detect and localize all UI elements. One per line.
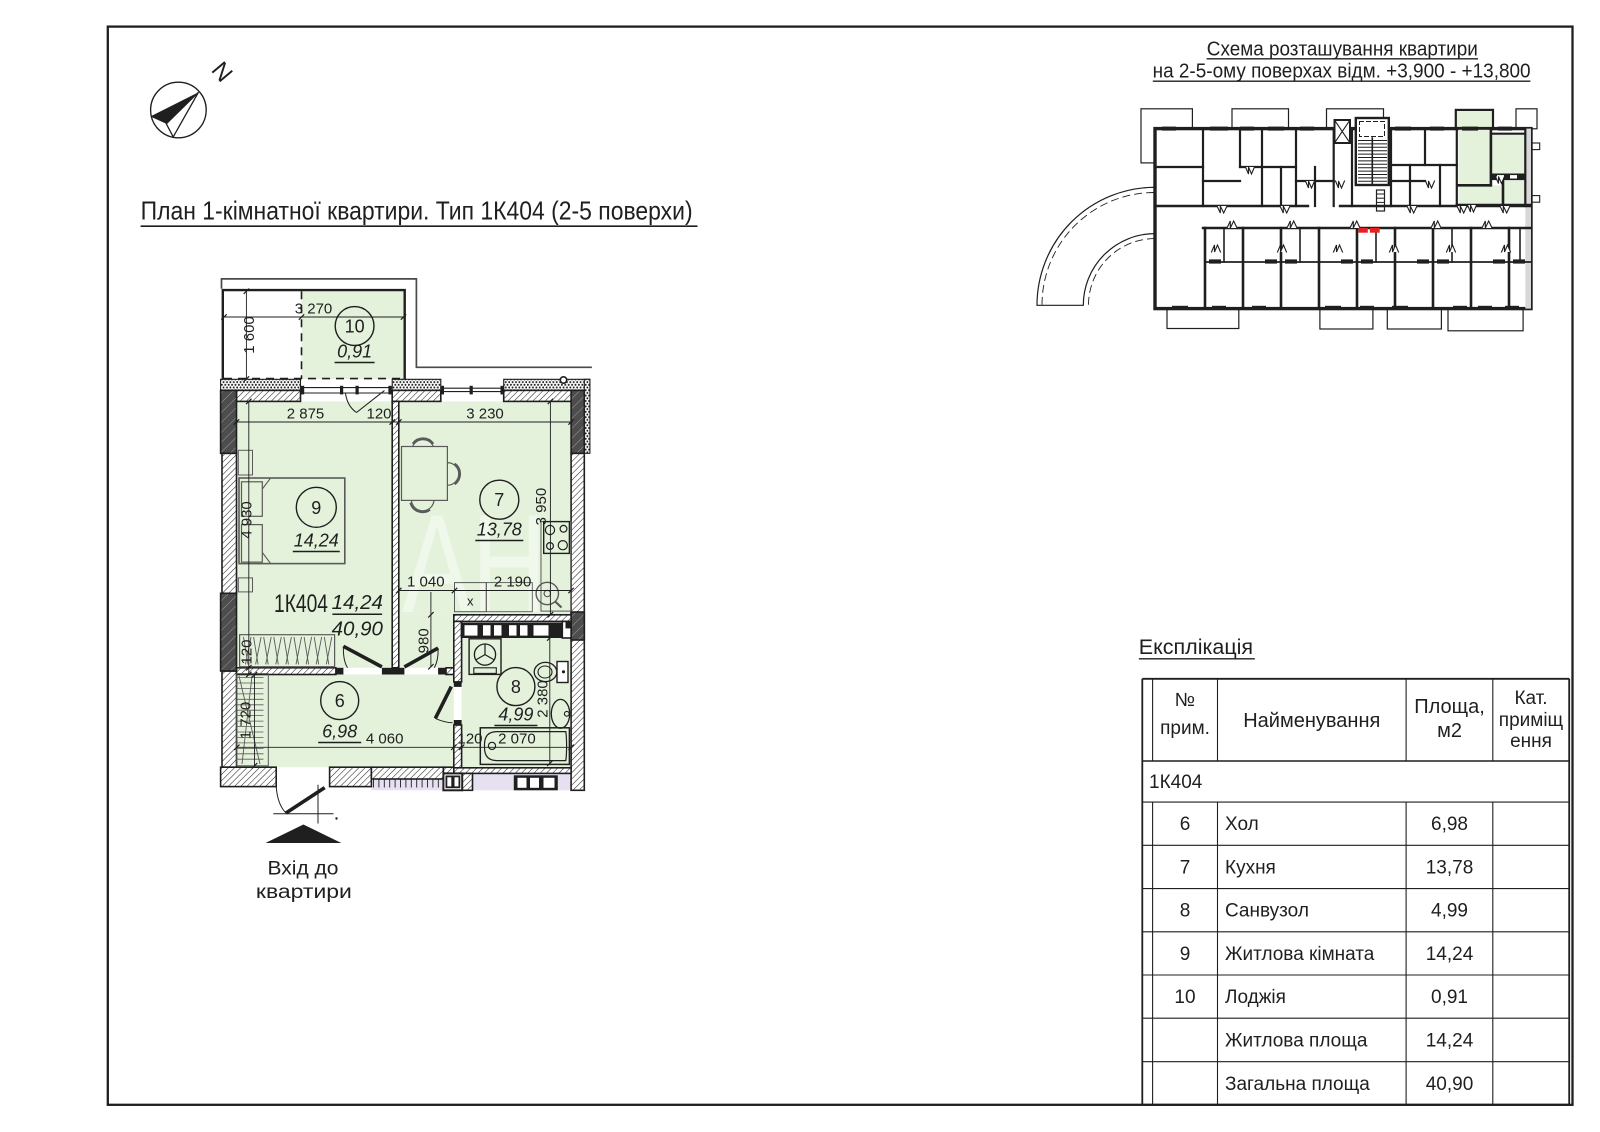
svg-text:0,91: 0,91	[337, 342, 372, 362]
svg-text:4 930: 4 930	[239, 501, 256, 539]
svg-text:10: 10	[345, 317, 365, 337]
svg-text:6,98: 6,98	[322, 722, 357, 742]
svg-text:14,24: 14,24	[1426, 944, 1474, 965]
svg-text:14,24: 14,24	[1426, 1031, 1474, 1052]
svg-text:13,78: 13,78	[477, 520, 522, 540]
svg-text:9: 9	[311, 498, 321, 518]
svg-text:Схема розташування квартири: Схема розташування квартири	[1207, 38, 1478, 61]
svg-text:№: №	[1175, 690, 1195, 711]
svg-text:14,24: 14,24	[332, 591, 383, 614]
svg-text:10: 10	[1174, 987, 1195, 1008]
svg-text:Кат.: Кат.	[1514, 688, 1547, 709]
svg-text:Хол: Хол	[1225, 814, 1259, 835]
svg-text:Житлова площа: Житлова площа	[1225, 1031, 1368, 1052]
svg-text:1К404: 1К404	[1149, 772, 1203, 793]
svg-text:Найменування: Найменування	[1243, 710, 1380, 732]
svg-text:2 190: 2 190	[494, 574, 532, 591]
svg-text:3 950: 3 950	[533, 488, 550, 526]
svg-text:8: 8	[511, 677, 521, 697]
svg-text:1 600: 1 600	[241, 316, 258, 354]
svg-text:приміщ: приміщ	[1499, 710, 1564, 731]
svg-text:2 875: 2 875	[287, 405, 325, 422]
svg-text:2 070: 2 070	[498, 731, 536, 748]
svg-text:Лоджія: Лоджія	[1225, 987, 1286, 1008]
svg-text:x: x	[467, 594, 474, 609]
svg-text:4,99: 4,99	[1431, 901, 1468, 922]
svg-text:Загальна площа: Загальна площа	[1225, 1074, 1370, 1095]
svg-text:7: 7	[1180, 858, 1191, 879]
svg-text:Площа,: Площа,	[1414, 696, 1485, 718]
svg-text:120: 120	[239, 639, 256, 664]
svg-text:6,98: 6,98	[1431, 814, 1468, 835]
svg-text:на 2-5-ому поверхах відм. +3,9: на 2-5-ому поверхах відм. +3,900 - +13,8…	[1153, 60, 1531, 83]
svg-text:ення: ення	[1510, 731, 1552, 752]
svg-text:1 040: 1 040	[407, 574, 445, 591]
svg-text:м2: м2	[1437, 720, 1462, 742]
svg-text:Кухня: Кухня	[1225, 858, 1276, 879]
svg-text:6: 6	[1180, 814, 1191, 835]
svg-text:0,91: 0,91	[1431, 987, 1468, 1008]
svg-text:3 230: 3 230	[466, 405, 504, 422]
svg-text:Вхід до: Вхід до	[268, 859, 339, 880]
svg-text:прим.: прим.	[1160, 718, 1210, 739]
svg-text:14,24: 14,24	[294, 531, 339, 551]
svg-text:Житлова кімната: Житлова кімната	[1225, 944, 1375, 965]
svg-text:980: 980	[416, 628, 433, 653]
svg-text:3 270: 3 270	[295, 300, 333, 317]
svg-text:План 1-кімнатної квартири. Тип: План 1-кімнатної квартири. Тип 1К404 (2-…	[141, 195, 693, 225]
svg-text:квартири: квартири	[256, 882, 352, 903]
svg-text:2 380: 2 380	[535, 680, 552, 718]
svg-text:1 720: 1 720	[238, 702, 255, 740]
svg-text:4 060: 4 060	[366, 731, 404, 748]
svg-text:120: 120	[457, 731, 482, 748]
svg-text:Експлікація: Експлікація	[1139, 635, 1253, 659]
svg-text:120: 120	[366, 405, 391, 422]
svg-text:1К404: 1К404	[274, 590, 328, 618]
svg-text:7: 7	[494, 490, 504, 510]
svg-text:13,78: 13,78	[1426, 858, 1474, 879]
svg-text:Санвузол: Санвузол	[1225, 901, 1309, 922]
svg-text:6: 6	[335, 691, 345, 711]
svg-text:40,90: 40,90	[332, 618, 384, 641]
svg-text:9: 9	[1180, 944, 1191, 965]
svg-text:40,90: 40,90	[1426, 1074, 1474, 1095]
svg-text:4,99: 4,99	[498, 705, 533, 725]
svg-text:8: 8	[1180, 901, 1191, 922]
